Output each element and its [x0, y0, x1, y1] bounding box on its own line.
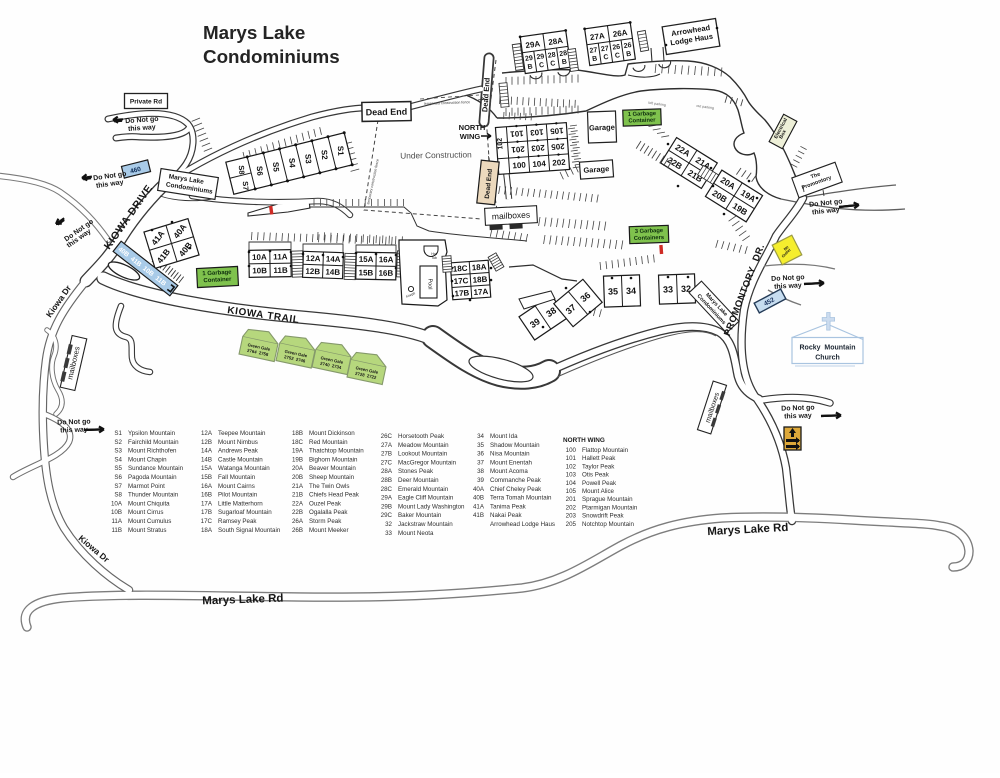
svg-text:S1: S1: [114, 430, 122, 437]
svg-text:14B: 14B: [325, 267, 340, 277]
svg-text:11A: 11A: [273, 252, 288, 261]
svg-text:205: 205: [550, 141, 564, 151]
svg-text:Snowdrift Peak: Snowdrift Peak: [582, 513, 625, 520]
svg-text:Thunder Mountain: Thunder Mountain: [128, 492, 179, 499]
svg-text:17C: 17C: [453, 276, 468, 286]
svg-text:WING: WING: [460, 132, 481, 141]
svg-text:Bighorn Mountain: Bighorn Mountain: [309, 456, 358, 463]
svg-text:26: 26: [612, 44, 621, 52]
svg-text:28: 28: [547, 52, 556, 60]
svg-text:40A: 40A: [473, 486, 485, 493]
svg-text:Mount Cairns: Mount Cairns: [218, 483, 255, 490]
svg-text:12B: 12B: [305, 267, 320, 277]
svg-text:11A: 11A: [111, 518, 122, 525]
svg-text:104: 104: [566, 480, 577, 487]
svg-text:Church: Church: [815, 355, 840, 362]
svg-text:15A: 15A: [359, 255, 374, 264]
svg-text:Chief Cheley Peak: Chief Cheley Peak: [490, 486, 542, 493]
svg-text:12B: 12B: [201, 439, 212, 446]
svg-text:14A: 14A: [326, 254, 341, 264]
svg-text:S3: S3: [114, 448, 122, 455]
svg-text:11B: 11B: [111, 527, 122, 534]
svg-text:15A: 15A: [201, 465, 213, 472]
svg-text:Marmot Point: Marmot Point: [128, 483, 165, 490]
svg-text:103: 103: [566, 472, 577, 479]
svg-text:16A: 16A: [379, 255, 394, 264]
svg-text:Rocky Mountain: Rocky Mountain: [799, 345, 855, 352]
svg-text:Thatchtop Mountain: Thatchtop Mountain: [309, 448, 364, 455]
svg-text:16B: 16B: [378, 269, 393, 278]
svg-text:Do Not go: Do Not go: [57, 418, 91, 426]
svg-text:NORTH WING: NORTH WING: [563, 437, 605, 444]
svg-text:17B: 17B: [454, 288, 469, 298]
svg-text:Terra Tomah Mountain: Terra Tomah Mountain: [490, 495, 552, 502]
svg-text:The Twin Owls: The Twin Owls: [309, 483, 349, 490]
svg-text:Notchtop Mountain: Notchtop Mountain: [582, 521, 634, 528]
svg-text:Beaver Mountain: Beaver Mountain: [309, 465, 356, 472]
svg-text:Meadow Mountain: Meadow Mountain: [398, 442, 449, 449]
svg-text:Little Matterhorn: Little Matterhorn: [218, 500, 263, 507]
svg-text:Mount Enentah: Mount Enentah: [490, 459, 533, 466]
svg-text:34: 34: [477, 433, 484, 440]
svg-text:28: 28: [559, 50, 568, 58]
svg-text:Mount Cumulus: Mount Cumulus: [128, 518, 171, 525]
svg-text:Andrews Peak: Andrews Peak: [218, 448, 259, 455]
svg-text:18A: 18A: [472, 262, 487, 272]
svg-text:27C: 27C: [381, 459, 393, 466]
svg-text:Shadow Mountain: Shadow Mountain: [490, 442, 540, 449]
svg-text:100: 100: [512, 160, 526, 170]
svg-text:17A: 17A: [201, 500, 213, 507]
svg-text:29C: 29C: [381, 512, 393, 519]
svg-text:Sugarloaf Mountain: Sugarloaf Mountain: [218, 509, 272, 516]
svg-text:Arrowhead Lodge Haus: Arrowhead Lodge Haus: [490, 521, 555, 528]
svg-text:Condominiums: Condominiums: [203, 46, 340, 67]
svg-text:Container: Container: [628, 118, 656, 125]
svg-text:28A: 28A: [381, 468, 393, 475]
svg-text:Ramsey Peak: Ramsey Peak: [218, 518, 257, 525]
svg-text:19B: 19B: [292, 456, 303, 463]
svg-text:22B: 22B: [292, 509, 303, 516]
svg-text:Nakai Peak: Nakai Peak: [490, 512, 523, 519]
svg-text:Private Rd: Private Rd: [130, 99, 162, 106]
svg-text:34: 34: [626, 286, 636, 296]
svg-text:S6: S6: [114, 474, 122, 481]
svg-text:12A: 12A: [306, 254, 321, 264]
svg-text:Storm Peak: Storm Peak: [309, 518, 342, 525]
svg-text:NORTH: NORTH: [459, 123, 486, 132]
svg-text:26A: 26A: [292, 518, 304, 525]
svg-text:26B: 26B: [292, 527, 303, 534]
svg-text:Teepee Mountain: Teepee Mountain: [218, 430, 266, 437]
svg-text:201: 201: [566, 496, 577, 503]
svg-text:Mount Dickinson: Mount Dickinson: [309, 430, 355, 437]
svg-text:27A: 27A: [381, 442, 393, 449]
svg-text:C: C: [615, 52, 621, 60]
svg-text:12A: 12A: [201, 430, 213, 437]
svg-text:10A: 10A: [252, 253, 267, 262]
svg-text:27: 27: [601, 45, 610, 53]
svg-text:36: 36: [477, 451, 484, 458]
svg-text:Mount Lady Washington: Mount Lady Washington: [398, 503, 465, 510]
svg-text:Mount Nimbus: Mount Nimbus: [218, 439, 258, 446]
svg-text:203: 203: [566, 513, 577, 520]
svg-text:S4: S4: [287, 158, 297, 169]
svg-text:Stones Peak: Stones Peak: [398, 468, 434, 475]
svg-text:18A: 18A: [201, 527, 213, 534]
svg-text:Red Mountain: Red Mountain: [309, 439, 348, 446]
svg-text:Ogalalla Peak: Ogalalla Peak: [309, 509, 348, 516]
svg-text:Ypsilon Mountain: Ypsilon Mountain: [128, 430, 176, 437]
svg-text:103: 103: [529, 127, 543, 137]
svg-text:18C: 18C: [292, 439, 304, 446]
svg-text:202: 202: [552, 158, 566, 168]
svg-text:Tub: Tub: [431, 256, 437, 260]
svg-text:Sprague Mountain: Sprague Mountain: [582, 496, 633, 503]
svg-text:Jackstraw Mountain: Jackstraw Mountain: [398, 521, 453, 528]
svg-text:32: 32: [385, 521, 392, 528]
svg-text:South Signal Mountain: South Signal Mountain: [218, 527, 281, 534]
svg-text:3 Garbage: 3 Garbage: [635, 228, 664, 235]
svg-text:Garage: Garage: [583, 164, 609, 175]
svg-text:17A: 17A: [473, 287, 488, 297]
svg-text:101: 101: [566, 455, 577, 462]
svg-text:Flattop Mountain: Flattop Mountain: [582, 447, 629, 454]
svg-text:19A: 19A: [292, 448, 304, 455]
svg-text:201: 201: [510, 144, 524, 154]
svg-text:Castle Mountain: Castle Mountain: [218, 456, 263, 463]
svg-text:Do Not go: Do Not go: [781, 404, 815, 412]
svg-text:10A: 10A: [111, 500, 123, 507]
svg-text:B: B: [561, 59, 567, 67]
svg-text:Chiefs Head Peak: Chiefs Head Peak: [309, 492, 360, 499]
svg-text:18B: 18B: [472, 275, 487, 285]
svg-text:Deer Mountain: Deer Mountain: [398, 477, 439, 484]
svg-text:Tanima Peak: Tanima Peak: [490, 503, 527, 510]
svg-text:35: 35: [608, 286, 618, 296]
svg-text:Watanga Mountain: Watanga Mountain: [218, 465, 270, 472]
svg-text:S2: S2: [114, 439, 122, 446]
svg-text:Mount Ida: Mount Ida: [490, 433, 518, 440]
svg-text:S3: S3: [303, 154, 313, 165]
svg-text:14B: 14B: [201, 456, 212, 463]
svg-text:S2: S2: [319, 150, 329, 161]
svg-text:Powell Peak: Powell Peak: [582, 480, 617, 487]
svg-text:16B: 16B: [201, 492, 212, 499]
svg-text:21A: 21A: [292, 483, 304, 490]
svg-text:S8: S8: [237, 165, 247, 175]
svg-text:Nisa Mountain: Nisa Mountain: [490, 451, 530, 458]
svg-text:104: 104: [532, 159, 546, 169]
svg-text:205: 205: [566, 521, 577, 528]
svg-text:Mount Acoma: Mount Acoma: [490, 468, 528, 475]
svg-text:26: 26: [623, 42, 632, 50]
svg-text:S5: S5: [271, 162, 281, 173]
svg-text:101: 101: [509, 129, 523, 139]
svg-text:27B: 27B: [381, 451, 392, 458]
svg-text:15B: 15B: [201, 474, 212, 481]
svg-text:Dead End: Dead End: [366, 107, 408, 118]
svg-text:105: 105: [549, 126, 563, 136]
svg-text:10B: 10B: [111, 509, 122, 516]
svg-text:105: 105: [566, 488, 577, 495]
svg-text:14A: 14A: [201, 448, 213, 455]
svg-text:Pilot Mountain: Pilot Mountain: [218, 492, 258, 499]
svg-text:Pagoda Mountain: Pagoda Mountain: [128, 474, 177, 481]
svg-text:Horsetooth Peak: Horsetooth Peak: [398, 433, 445, 440]
svg-text:S1: S1: [336, 146, 346, 157]
svg-text:18C: 18C: [453, 264, 468, 274]
svg-text:Mount Richthofen: Mount Richthofen: [128, 448, 177, 455]
svg-text:Marys Lake: Marys Lake: [203, 22, 305, 43]
svg-text:B: B: [527, 63, 533, 71]
svg-text:B: B: [626, 51, 632, 59]
svg-text:39: 39: [477, 477, 484, 484]
svg-text:Mount Alice: Mount Alice: [582, 488, 615, 495]
svg-text:37: 37: [477, 459, 484, 466]
svg-text:33: 33: [385, 530, 392, 537]
svg-text:Mount Cirrus: Mount Cirrus: [128, 509, 163, 516]
svg-text:Pool: Pool: [427, 278, 433, 289]
svg-text:29: 29: [525, 55, 534, 63]
svg-text:C: C: [550, 60, 556, 68]
svg-text:29B: 29B: [381, 503, 392, 510]
svg-text:10B: 10B: [252, 266, 267, 275]
svg-text:Fall Mountain: Fall Mountain: [218, 474, 256, 481]
svg-text:20A: 20A: [292, 465, 304, 472]
svg-text:S7: S7: [241, 181, 251, 191]
svg-text:Under Construction: Under Construction: [400, 149, 472, 160]
svg-text:S6: S6: [255, 166, 265, 177]
svg-text:17C: 17C: [201, 518, 213, 525]
svg-text:Commanche Peak: Commanche Peak: [490, 477, 542, 484]
svg-text:38: 38: [477, 468, 484, 475]
svg-text:28B: 28B: [381, 477, 392, 484]
svg-text:20B: 20B: [292, 474, 303, 481]
svg-text:Lookout Mountain: Lookout Mountain: [398, 451, 448, 458]
svg-text:Mount Neota: Mount Neota: [398, 530, 434, 537]
svg-text:40B: 40B: [473, 495, 484, 502]
svg-text:Mount Chiquita: Mount Chiquita: [128, 500, 170, 507]
svg-text:S7: S7: [114, 483, 122, 490]
svg-text:Hallett Peak: Hallett Peak: [582, 455, 616, 462]
svg-text:41A: 41A: [473, 503, 485, 510]
svg-text:Mount Chapin: Mount Chapin: [128, 456, 167, 463]
svg-text:Taylor Peak: Taylor Peak: [582, 463, 615, 470]
svg-text:Eagle Cliff Mountain: Eagle Cliff Mountain: [398, 495, 454, 502]
svg-text:this way: this way: [774, 282, 802, 290]
svg-text:mailboxes: mailboxes: [492, 210, 531, 222]
svg-text:Mount Meeker: Mount Meeker: [309, 527, 349, 534]
svg-text:S5: S5: [114, 465, 122, 472]
svg-text:this way: this way: [784, 413, 812, 421]
svg-text:29A: 29A: [381, 495, 393, 502]
svg-text:33: 33: [663, 284, 673, 294]
svg-text:15B: 15B: [358, 268, 373, 277]
svg-text:C: C: [539, 62, 545, 70]
svg-text:Containers: Containers: [634, 235, 664, 242]
svg-text:S8: S8: [114, 492, 122, 499]
svg-text:Garage: Garage: [589, 123, 615, 133]
svg-text:22A: 22A: [292, 500, 304, 507]
svg-text:Fairchild Mountain: Fairchild Mountain: [128, 439, 179, 446]
svg-text:Emerald Mountain: Emerald Mountain: [398, 486, 449, 493]
svg-text:100: 100: [566, 447, 577, 454]
svg-text:MacGregor Mountain: MacGregor Mountain: [398, 459, 457, 466]
svg-text:Mount Stratus: Mount Stratus: [128, 527, 167, 534]
svg-text:203: 203: [530, 143, 544, 153]
svg-text:21B: 21B: [292, 492, 303, 499]
svg-text:Sheep Mountain: Sheep Mountain: [309, 474, 355, 481]
svg-text:Baker Mountain: Baker Mountain: [398, 512, 442, 519]
svg-text:202: 202: [566, 504, 577, 511]
svg-text:18B: 18B: [292, 430, 303, 437]
svg-text:this way: this way: [60, 427, 88, 435]
svg-text:Ptarmigan Mountain: Ptarmigan Mountain: [582, 504, 638, 511]
svg-text:17B: 17B: [201, 509, 212, 516]
svg-text:102: 102: [566, 463, 577, 470]
svg-text:26C: 26C: [381, 433, 393, 440]
svg-text:16A: 16A: [201, 483, 213, 490]
svg-text:28C: 28C: [381, 486, 393, 493]
svg-text:Sundance Mountain: Sundance Mountain: [128, 465, 184, 472]
svg-text:11B: 11B: [273, 266, 288, 275]
svg-text:C: C: [603, 54, 609, 62]
svg-text:35: 35: [477, 442, 484, 449]
svg-text:41B: 41B: [473, 512, 484, 519]
svg-text:B: B: [592, 55, 598, 63]
svg-text:27: 27: [589, 47, 598, 55]
svg-text:Otis Peak: Otis Peak: [582, 472, 610, 479]
svg-text:S4: S4: [114, 456, 122, 463]
svg-text:29: 29: [536, 53, 545, 61]
svg-text:Ouzel Peak: Ouzel Peak: [309, 500, 342, 507]
